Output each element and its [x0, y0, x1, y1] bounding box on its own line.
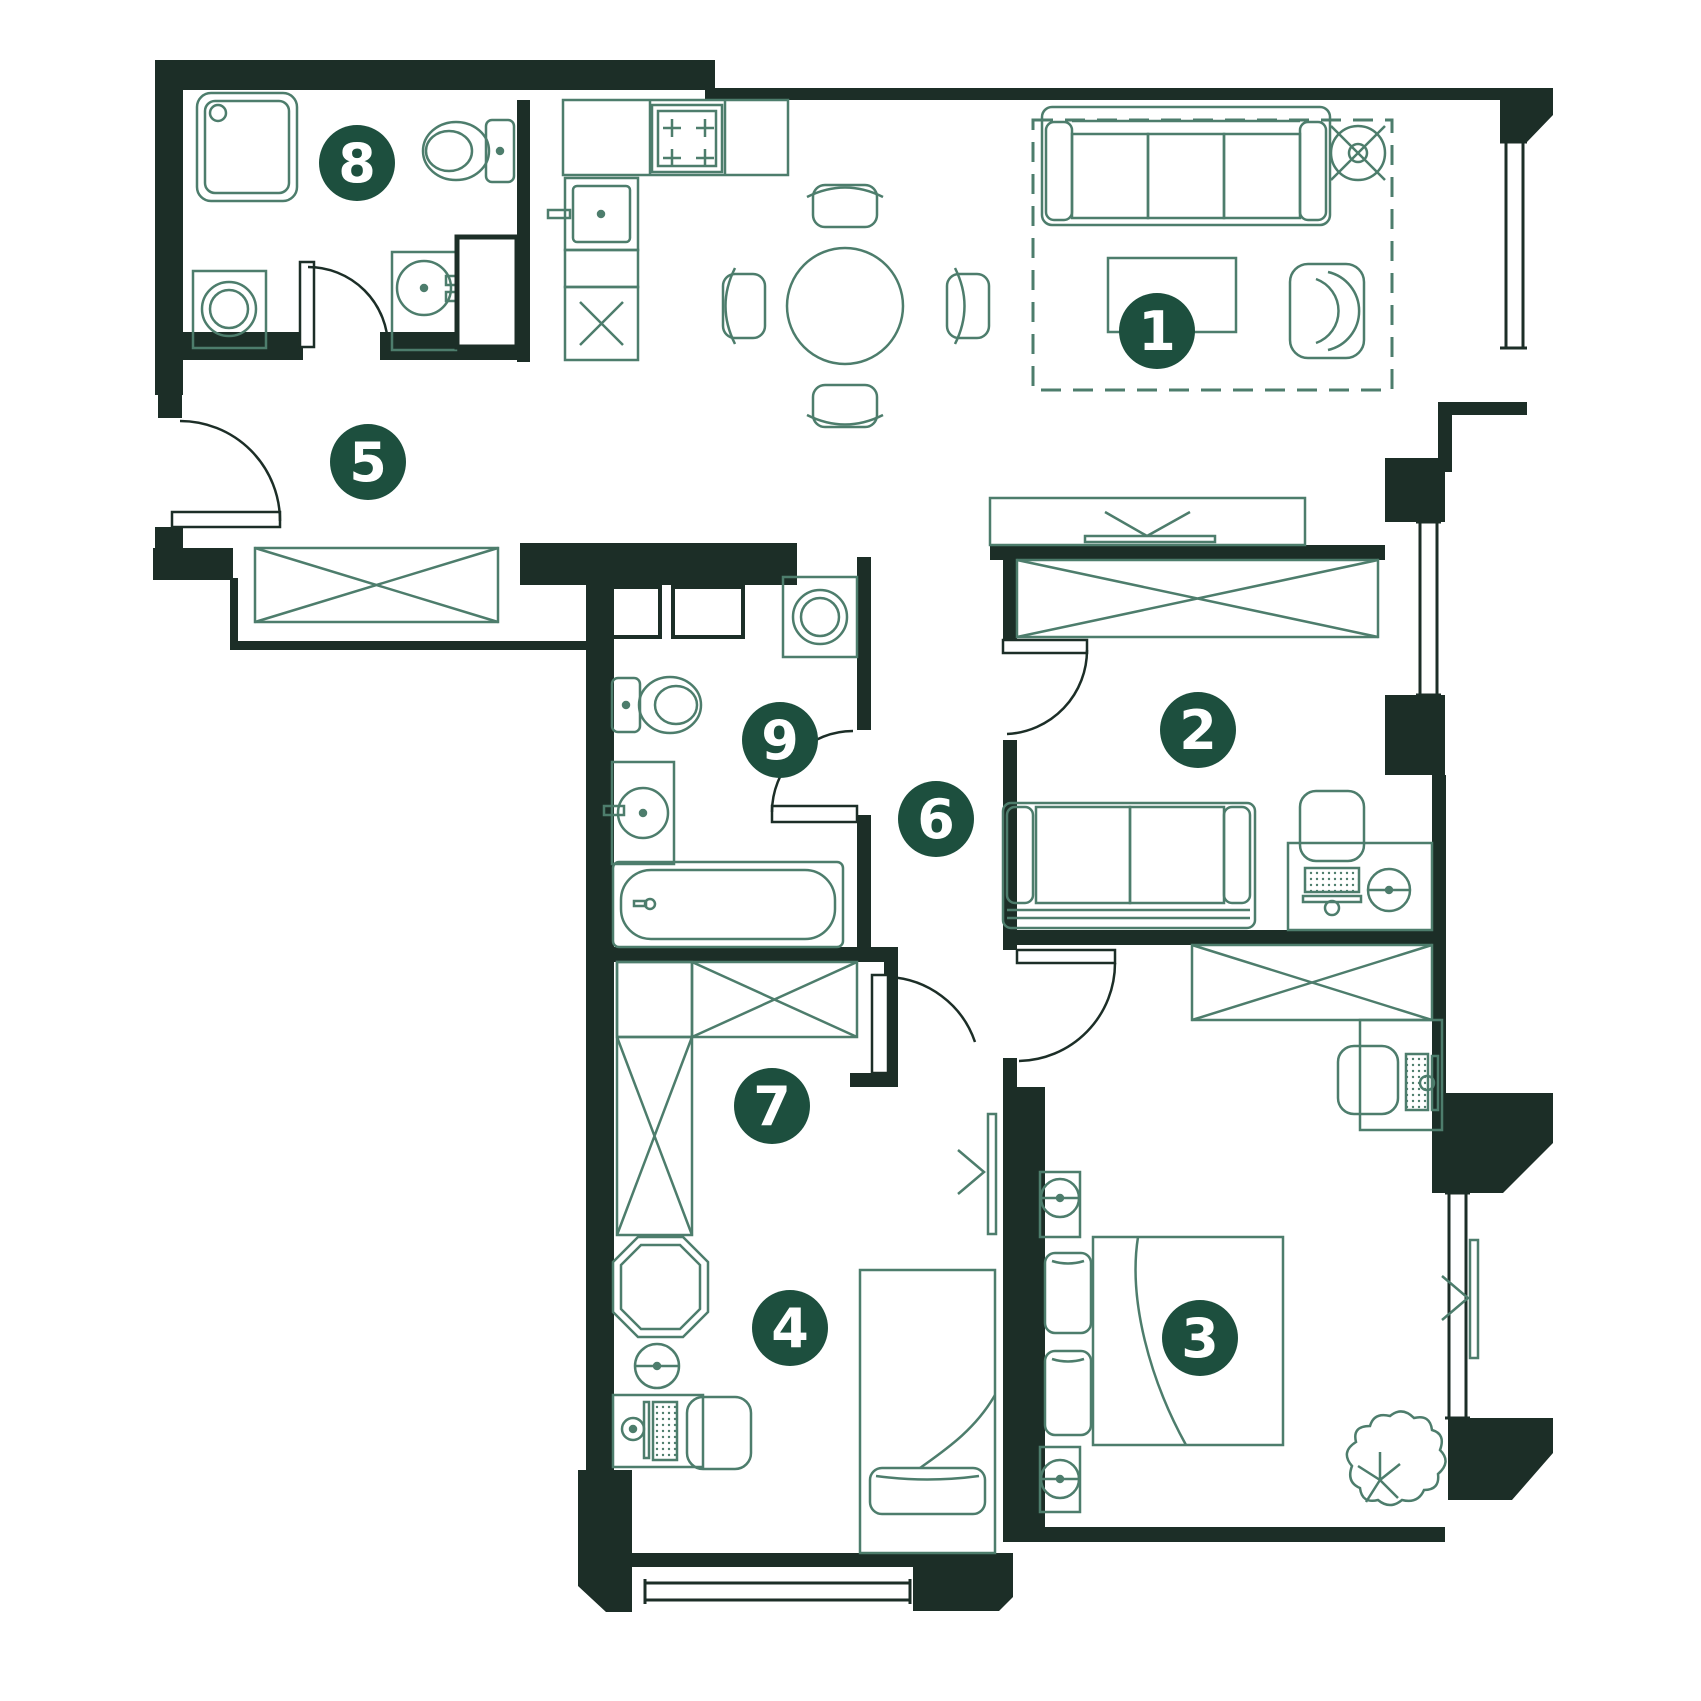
- nightstand-room3-top: [1040, 1172, 1080, 1237]
- living-zone-dashed: [1033, 120, 1392, 390]
- dishwasher: [565, 287, 638, 360]
- hallway-wardrobe: [255, 548, 498, 622]
- washing-machine-room9: [783, 577, 857, 657]
- room-marker-7: 7: [734, 1068, 810, 1144]
- wardrobe-room3: [1192, 945, 1432, 1020]
- svg-text:7: 7: [753, 1075, 791, 1138]
- room-marker-3: 3: [1162, 1300, 1238, 1376]
- sofa-living: [1042, 107, 1330, 225]
- dining-chair-top: [807, 185, 883, 227]
- floor-lamp-room4: [635, 1344, 679, 1388]
- desk-chair-room2: [1300, 791, 1364, 861]
- side-table-room2: [1368, 869, 1410, 911]
- dining-chair-bottom: [807, 385, 883, 427]
- duct-shafts: [612, 587, 743, 637]
- bedroom3: [1040, 945, 1478, 1512]
- wardrobe-room2: [1017, 560, 1378, 637]
- desk-room2: [1288, 791, 1432, 930]
- room-marker-9: 9: [742, 702, 818, 778]
- tv-room3: [1442, 1240, 1478, 1358]
- svg-text:5: 5: [349, 431, 387, 494]
- desk-room4: [613, 1395, 751, 1469]
- kitchen: [548, 100, 788, 360]
- dining-chair-right: [947, 268, 989, 344]
- windows: [645, 142, 1527, 1604]
- toilet-room9: [612, 677, 701, 733]
- dining-chair-left: [723, 268, 765, 344]
- window-bedroom2-right: [1416, 522, 1441, 695]
- svg-text:1: 1: [1138, 300, 1176, 363]
- desk-room3: [1338, 1020, 1442, 1130]
- duct-cabinet-room8: [457, 237, 517, 347]
- bedroom2-door: [1003, 640, 1087, 734]
- floor-lamp-living: [1331, 126, 1385, 180]
- room-marker-1: 1: [1119, 293, 1195, 369]
- tv-console-living: [990, 498, 1305, 545]
- exterior-walls: [153, 60, 1553, 1612]
- tv-room4: [958, 1114, 996, 1234]
- sink-room9: [604, 762, 674, 864]
- stove: [652, 105, 722, 172]
- bathroom9: [604, 577, 857, 947]
- toilet-room8: [423, 120, 514, 182]
- kitchen-sink: [548, 178, 638, 250]
- desk-chair-room3: [1338, 1046, 1398, 1114]
- armchair-living: [1290, 264, 1364, 358]
- dining-table: [787, 248, 903, 364]
- room-marker-2: 2: [1160, 692, 1236, 768]
- plant-room3: [1347, 1411, 1446, 1505]
- window-bedroom4-bottom: [645, 1579, 910, 1604]
- bathtub: [613, 862, 843, 947]
- svg-text:8: 8: [338, 132, 376, 195]
- room-marker-8: 8: [319, 125, 395, 201]
- dining-set: [723, 185, 989, 427]
- kitchen-counter-low: [565, 250, 638, 287]
- room-marker-6: 6: [898, 781, 974, 857]
- window-living-right: [1500, 142, 1527, 348]
- desk-chair-room4: [687, 1397, 751, 1469]
- svg-text:6: 6: [917, 788, 955, 851]
- room-marker-4: 4: [752, 1290, 828, 1366]
- svg-text:3: 3: [1181, 1307, 1219, 1370]
- walls: [153, 60, 1553, 1612]
- svg-text:9: 9: [761, 709, 799, 772]
- sofa-room2: [1003, 803, 1255, 928]
- bedroom4-door: [872, 975, 975, 1073]
- keyboard-room4: [653, 1402, 677, 1460]
- room-marker-5: 5: [330, 424, 406, 500]
- svg-text:4: 4: [771, 1297, 809, 1360]
- shower-tray: [197, 93, 297, 201]
- bed-room4: [860, 1270, 995, 1553]
- monitor-room4: [644, 1402, 649, 1458]
- floor-plan: 123456789: [0, 0, 1701, 1701]
- svg-text:2: 2: [1179, 699, 1217, 762]
- armchair-room4: [613, 1237, 708, 1337]
- keyboard-room3: [1406, 1054, 1428, 1110]
- bedroom3-door: [1017, 950, 1115, 1061]
- nightstand-room3-bottom: [1040, 1447, 1080, 1512]
- entrance-door: [172, 421, 280, 527]
- keyboard-room2: [1305, 868, 1359, 892]
- bathroom8-door: [300, 262, 388, 347]
